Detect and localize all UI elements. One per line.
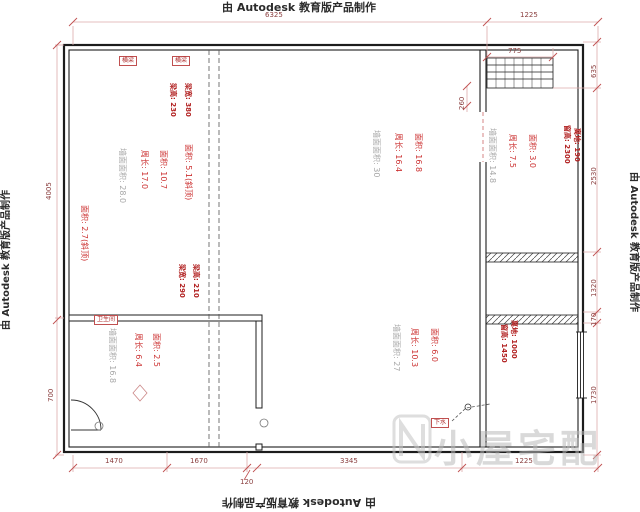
dim-bottom-1470: 1470	[105, 458, 123, 465]
window1-offset: 离地: 190	[573, 128, 580, 162]
beam-dashed-lines	[209, 50, 219, 447]
beam1-width: 梁宽: 380	[184, 83, 191, 117]
diamond-symbol	[133, 385, 147, 401]
drain-tag: 下水	[431, 418, 449, 428]
dim-left-4005: 4005	[46, 182, 53, 200]
window2-offset: 离地: 1000	[510, 320, 517, 359]
right-top-room-perimeter: 周长: 7.5	[508, 134, 516, 168]
right-top-room-wall-area: 墙面面积: 14.8	[488, 128, 496, 183]
drain-symbol-2	[260, 419, 268, 427]
beam2-width: 梁宽: 290	[178, 264, 185, 298]
dim-bottom-120: 120	[240, 479, 253, 486]
center-room-area: 面积: 16.8	[414, 133, 422, 172]
hatched-wall-bands	[486, 253, 578, 324]
right-bottom-room-perimeter: 周长: 10.3	[410, 328, 418, 367]
dim-left-700: 700	[48, 389, 55, 402]
watermark-bottom: 由 Autodesk 教育版产品制作	[222, 497, 376, 508]
dim-window-260: 260	[459, 97, 466, 110]
door-swing-arc	[71, 400, 101, 430]
dim-bottom-3345: 3345	[340, 458, 358, 465]
floor-drain-symbol	[95, 422, 103, 430]
outer-walls	[64, 45, 583, 452]
right-bottom-room-wall-area: 墙面面积: 27	[392, 324, 400, 371]
dim-bottom-1670: 1670	[190, 458, 208, 465]
watermark-right: 由 Autodesk 教育版产品制作	[628, 172, 638, 312]
dim-bottom-1225: 1225	[515, 458, 533, 465]
window1-height: 窗高: 2300	[563, 125, 570, 164]
center-room-wall-area: 墙面面积: 30	[372, 130, 380, 177]
dim-right-170: 170	[591, 313, 598, 326]
window-right-wall	[576, 332, 587, 398]
left-room-area: 面积: 10.7	[159, 150, 167, 189]
interior-wall-right-column	[480, 50, 486, 447]
floorplan-canvas: 由 Autodesk 教育版产品制作 由 Autodesk 教育版产品制作 由 …	[0, 0, 640, 512]
bathroom-tag: 卫生间	[94, 315, 118, 325]
dim-right-1730: 1730	[591, 386, 598, 404]
beam-tag-2: 横梁	[172, 56, 190, 66]
window-top-right	[487, 58, 553, 88]
logo-mark	[394, 416, 430, 462]
beam2-height: 梁高: 210	[192, 264, 199, 298]
watermark-left: 由 Autodesk 教育版产品制作	[2, 190, 12, 330]
bathroom-area: 面积: 2.5	[152, 333, 160, 367]
left-room-perimeter: 周长: 17.0	[140, 150, 148, 189]
dim-top-1225: 1225	[520, 12, 538, 19]
dim-top-6325: 6325	[265, 12, 283, 19]
window2-height: 窗高: 1450	[500, 324, 507, 363]
bathroom-wall-area: 墙面面积: 16.8	[108, 328, 116, 383]
right-top-room-area: 面积: 3.0	[528, 134, 536, 168]
watermark-top: 由 Autodesk 教育版产品制作	[222, 2, 376, 13]
dim-right-635: 635	[591, 65, 598, 78]
beam1-height: 梁高: 230	[169, 83, 176, 117]
beam-tag-1: 横梁	[119, 56, 137, 66]
left-room-area-sloped: 面积: 5.1(斜顶)	[184, 144, 192, 200]
center-room-perimeter: 周长: 16.4	[394, 133, 402, 172]
dim-right-1320: 1320	[591, 279, 598, 297]
dim-window-775: 775	[508, 48, 521, 55]
left-room-wall-area: 墙面面积: 28.0	[118, 148, 126, 203]
right-bottom-room-area: 面积: 6.0	[430, 328, 438, 362]
dimension-lines	[55, 22, 601, 480]
left-room-area-sloped-2: 面积: 2.7(斜顶)	[80, 205, 88, 261]
dimension-ticks	[53, 18, 602, 472]
dim-right-2530: 2530	[591, 167, 598, 185]
bathroom-perimeter: 周长: 6.4	[134, 333, 142, 367]
